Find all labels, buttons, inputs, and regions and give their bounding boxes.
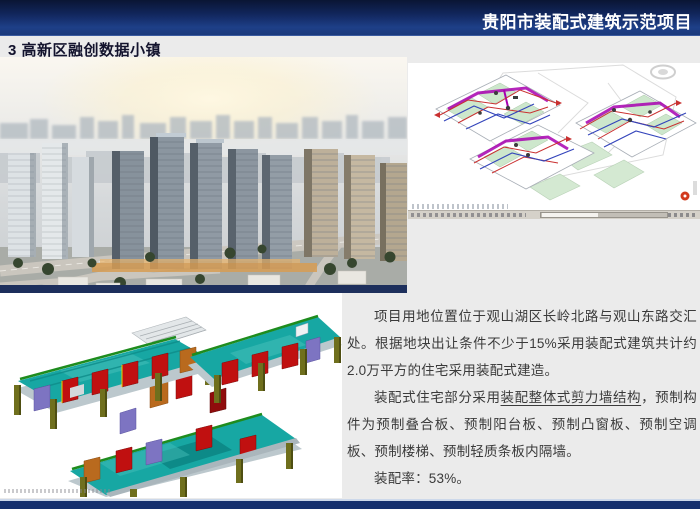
left-towers [8, 143, 94, 259]
horizontal-scrollbar [540, 212, 667, 218]
status-icons-smudge [668, 213, 697, 217]
description-paragraph-3: 装配率：53%。 [347, 465, 697, 492]
wing-top-right [188, 316, 342, 403]
status-text-smudge [411, 213, 526, 217]
wing-bottom [68, 414, 302, 497]
header-bar: 贵阳市装配式建筑示范项目 [0, 0, 700, 36]
scrollbar-thumb [542, 213, 598, 217]
mep-status-bar [408, 210, 700, 219]
right-towers [304, 149, 407, 261]
warning-badge-icon [681, 192, 690, 201]
mep-axon-view [408, 63, 700, 203]
description-paragraph-1: 项目用地位置位于观山湖区长岭北路与观山东路交汇处。根据地块出让条件不少于15%采… [347, 303, 697, 384]
precast-structure-model-image [0, 293, 342, 498]
precast-structure-art [0, 293, 342, 498]
model-status-smudge [4, 489, 112, 493]
bim-mep-screenshot [408, 63, 700, 219]
aerial-rendering-art [0, 57, 407, 293]
footer-bar [0, 499, 700, 509]
photo-bottom-band [0, 285, 407, 293]
viewport-controls-strip [412, 204, 508, 209]
paragraph-2-underlined-term: 装配整体式剪力墙结构 [501, 390, 642, 405]
paragraph-2-prefix: 装配式住宅部分采用 [374, 390, 501, 405]
steering-wheel-icon [651, 66, 675, 79]
aerial-rendering-image [0, 57, 407, 293]
header-project-title: 贵阳市装配式建筑示范项目 [482, 8, 692, 33]
description-paragraph-2: 装配式住宅部分采用装配整体式剪力墙结构，预制构件为预制叠合板、预制阳台板、预制凸… [347, 384, 697, 465]
project-description: 项目用地位置位于观山湖区长岭北路与观山东路交汇处。根据地块出让条件不少于15%采… [347, 303, 697, 492]
presentation-slide: 贵阳市装配式建筑示范项目 3 高新区融创数据小镇 [0, 0, 700, 509]
